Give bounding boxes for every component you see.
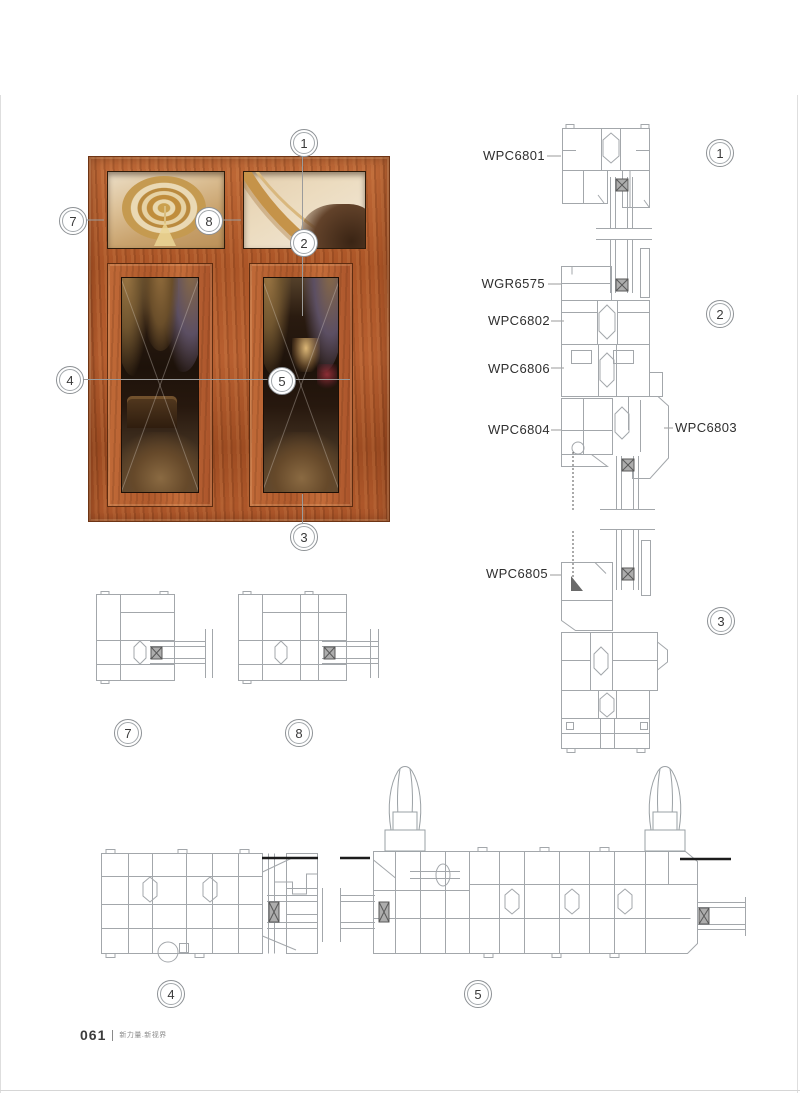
vertical-section-drawing [562,125,669,753]
photo-callout-1: 1 [290,129,318,157]
callout-number: 5 [278,374,285,389]
section-callout-4: 4 [157,980,185,1008]
callout-number: 8 [205,214,212,229]
photo-callout-4: 4 [56,366,84,394]
profile-label-wpc6804: WPC6804 [466,422,550,438]
callout-number: 5 [474,987,481,1002]
callout-number: 2 [716,307,723,322]
page-footer: 061 新力量.新视界 [80,1027,167,1043]
photo-callout-8: 8 [195,207,223,235]
callout-number: 3 [300,530,307,545]
footer-slogan: 新力量.新视界 [119,1030,166,1040]
callout-number: 1 [716,146,723,161]
profile-label-wpc6801: WPC6801 [461,148,545,164]
section-callout-7: 7 [114,719,142,747]
section-callout-3: 3 [707,607,735,635]
profile-label-wpc6806: WPC6806 [466,361,550,377]
callout-number: 3 [717,614,724,629]
footer-divider [112,1030,113,1041]
callout-number: 4 [66,373,73,388]
catalog-page: WPC6801 WGR6575 WPC6802 WPC6806 WPC6804 … [0,0,800,1093]
callout-number: 7 [69,214,76,229]
profile-label-wgr6575: WGR6575 [461,276,545,292]
glass-spacers-78 [151,647,335,659]
photo-callout-2: 2 [290,229,318,257]
photo-callout-3: 3 [290,523,318,551]
glass-spacers-45 [269,902,709,924]
crank-handle-right [645,767,685,852]
callout-number: 2 [300,236,307,251]
section-callout-5: 5 [464,980,492,1008]
technical-drawings [0,0,800,1093]
profile-label-wpc6802: WPC6802 [466,313,550,329]
section-callout-1: 1 [706,139,734,167]
section-drawing-7 [97,592,213,684]
section-drawing-4 [102,850,323,963]
callout-number: 4 [167,987,174,1002]
section-callout-8: 8 [285,719,313,747]
profile-label-wpc6805: WPC6805 [464,566,548,582]
section-drawing-8 [239,592,379,684]
photo-callout-7: 7 [59,207,87,235]
crank-handle-left [385,767,425,852]
photo-callout-5: 5 [268,367,296,395]
callout-number: 7 [124,726,131,741]
section-callout-2: 2 [706,300,734,328]
section-drawing-5 [340,848,746,958]
callout-number: 1 [300,136,307,151]
callout-number: 8 [295,726,302,741]
profile-label-wpc6803: WPC6803 [675,420,737,436]
page-number: 061 [80,1027,106,1043]
